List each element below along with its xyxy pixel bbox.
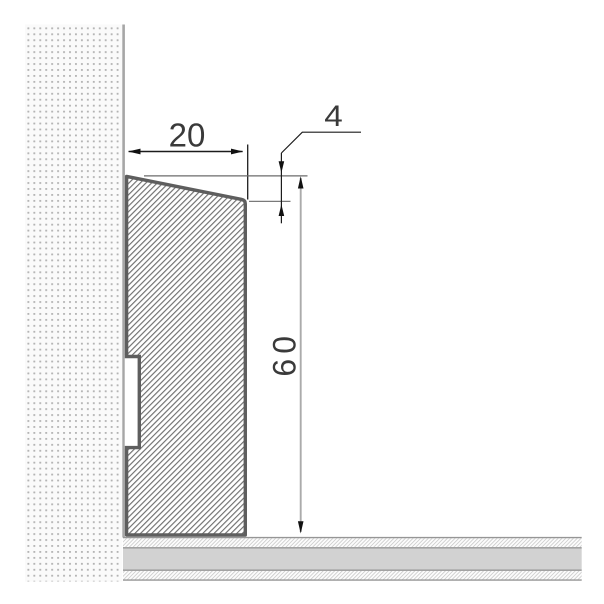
svg-text:4: 4 [324, 100, 343, 133]
svg-text:20: 20 [169, 117, 206, 154]
svg-text:60: 60 [266, 331, 302, 377]
